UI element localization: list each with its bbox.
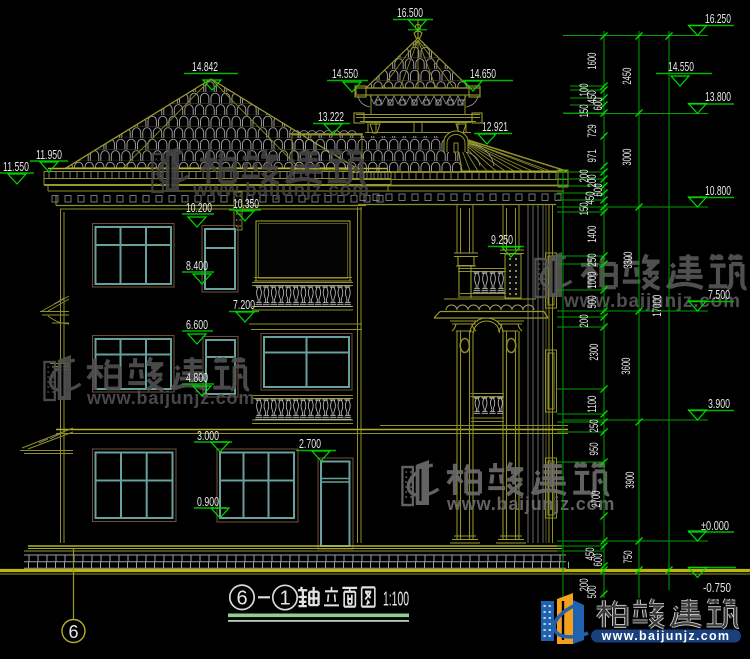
- svg-text:3.000: 3.000: [197, 428, 219, 443]
- svg-text:www.baijunjz.com: www.baijunjz.com: [86, 388, 255, 408]
- svg-text:200: 200: [577, 314, 591, 327]
- svg-text:250: 250: [587, 419, 601, 432]
- svg-text:14.550: 14.550: [668, 59, 694, 74]
- svg-text:729: 729: [585, 124, 599, 137]
- svg-text:14.550: 14.550: [332, 66, 358, 81]
- svg-text:13.800: 13.800: [705, 89, 731, 104]
- svg-text:7.200: 7.200: [233, 297, 255, 312]
- svg-text:6: 6: [68, 622, 78, 642]
- svg-text:2450: 2450: [620, 67, 634, 84]
- svg-text:3300: 3300: [621, 251, 635, 268]
- svg-text:500: 500: [585, 295, 599, 308]
- svg-text:11.550: 11.550: [3, 159, 29, 174]
- svg-text:1100: 1100: [585, 395, 599, 412]
- svg-text:10.200: 10.200: [186, 200, 212, 215]
- svg-text:11.950: 11.950: [36, 147, 62, 162]
- svg-text:1: 1: [279, 588, 290, 610]
- svg-text:10.350: 10.350: [233, 196, 259, 211]
- svg-text:14.842: 14.842: [192, 59, 218, 74]
- svg-text:950: 950: [587, 442, 601, 455]
- svg-text:13.222: 13.222: [318, 109, 344, 124]
- svg-text:3600: 3600: [619, 357, 633, 374]
- svg-text:1400: 1400: [585, 225, 599, 242]
- svg-text:14.650: 14.650: [470, 66, 496, 81]
- svg-text:1600: 1600: [585, 52, 599, 69]
- svg-text:6.600: 6.600: [186, 317, 208, 332]
- svg-text:250: 250: [585, 253, 599, 266]
- svg-text:971: 971: [585, 149, 599, 162]
- svg-text:6: 6: [236, 588, 247, 610]
- svg-text:3000: 3000: [620, 148, 634, 165]
- svg-text:12.921: 12.921: [482, 119, 508, 134]
- svg-text:2700: 2700: [589, 490, 603, 507]
- svg-text:17000: 17000: [650, 295, 664, 317]
- svg-text:150: 150: [577, 202, 591, 215]
- svg-text:2.700: 2.700: [299, 436, 321, 451]
- svg-text:2300: 2300: [587, 343, 601, 360]
- svg-text:16.500: 16.500: [397, 5, 423, 20]
- svg-text:1000: 1000: [585, 271, 599, 288]
- svg-text:7.500: 7.500: [708, 287, 730, 302]
- svg-text:750: 750: [621, 550, 635, 563]
- svg-text:9.250: 9.250: [491, 232, 513, 247]
- svg-text:0.900: 0.900: [197, 494, 219, 509]
- svg-text:3.900: 3.900: [708, 396, 730, 411]
- svg-text:150: 150: [577, 104, 591, 117]
- svg-text:600: 600: [591, 553, 605, 566]
- svg-text:10.800: 10.800: [705, 183, 731, 198]
- svg-text:16.250: 16.250: [705, 11, 731, 26]
- svg-text:8.400: 8.400: [186, 258, 208, 273]
- svg-text:-0.750: -0.750: [703, 580, 731, 595]
- svg-text:600: 600: [591, 97, 605, 110]
- svg-text:1:100: 1:100: [383, 589, 409, 611]
- svg-text:3900: 3900: [623, 471, 637, 488]
- svg-text:www.baijunjz.com: www.baijunjz.com: [601, 629, 731, 643]
- svg-text:www.baijunjz.com: www.baijunjz.com: [192, 180, 370, 201]
- svg-text:4.800: 4.800: [186, 370, 208, 385]
- svg-text:500: 500: [585, 585, 599, 598]
